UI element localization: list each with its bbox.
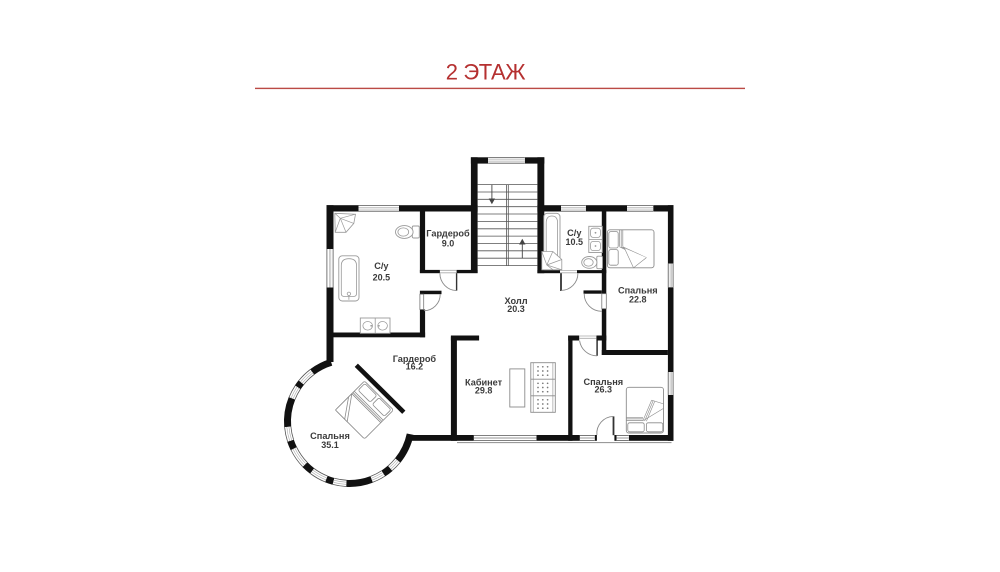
svg-text:20.3: 20.3 [507,304,525,314]
svg-text:20.5: 20.5 [373,272,391,282]
svg-text:Гардероб: Гардероб [426,228,470,238]
svg-text:С/у: С/у [374,261,389,271]
svg-text:2 ЭТАЖ: 2 ЭТАЖ [446,60,527,85]
svg-text:16.2: 16.2 [406,362,424,372]
svg-text:35.1: 35.1 [321,440,339,450]
svg-text:22.8: 22.8 [629,295,647,305]
svg-text:9.0: 9.0 [442,239,455,249]
svg-text:26.3: 26.3 [595,384,613,394]
svg-text:10.5: 10.5 [566,237,584,247]
svg-text:29.8: 29.8 [475,385,493,395]
